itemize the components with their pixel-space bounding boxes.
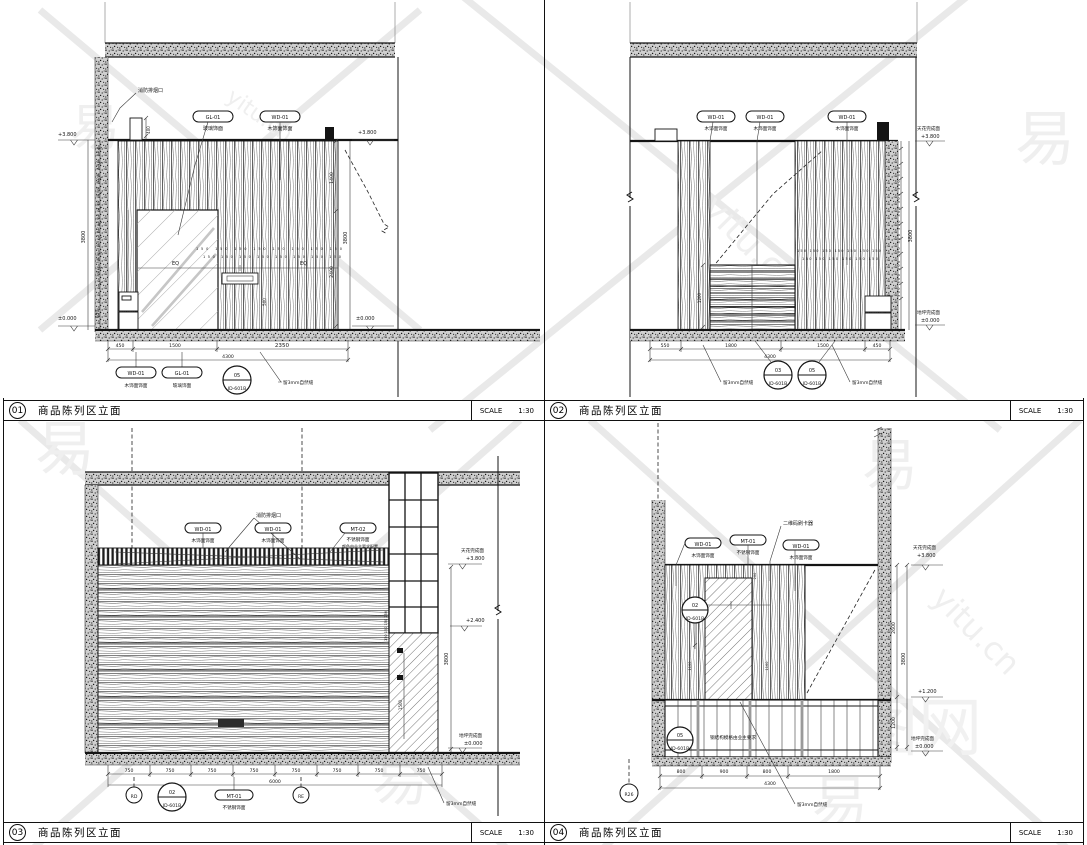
eq-label: EQ bbox=[300, 261, 307, 267]
level-marker-floor: 地坪完成面 ±0.000 bbox=[911, 735, 943, 756]
tag-code: GL-01 bbox=[175, 371, 190, 377]
detail-bubble: 02 ID-601B bbox=[158, 783, 186, 811]
detail-id: ID-601B bbox=[228, 386, 246, 392]
right-dim-column: 3800 bbox=[444, 565, 453, 753]
tag-desc: 木饰面饰面 bbox=[125, 382, 148, 389]
dim-label: 2600 bbox=[891, 622, 897, 634]
right-dim-column: 2600 1200 3800 bbox=[891, 563, 909, 751]
level-label: 天花完成面 bbox=[461, 547, 484, 554]
dim-label: 1500 bbox=[817, 343, 829, 349]
scale-value: 1:30 bbox=[518, 407, 534, 415]
tag-desc: 颜色由业主要求配置 bbox=[342, 543, 378, 549]
panel-number-badge: 03 bbox=[9, 824, 26, 841]
dim-label: 3800 bbox=[444, 653, 450, 666]
detail-number: 02 bbox=[692, 603, 698, 609]
eq-label: EQ bbox=[172, 261, 179, 267]
level-label: 天花完成面 bbox=[913, 544, 936, 551]
right-dim-column: 300 300 300 300 300 300 300 300 300 300 … bbox=[897, 141, 914, 330]
tag-code: MT-02 bbox=[350, 527, 365, 533]
dim-label: 2350 bbox=[275, 343, 290, 349]
scale-label: SCALE bbox=[1019, 829, 1041, 837]
right-fixture bbox=[865, 296, 891, 330]
tag-code: WD-01 bbox=[708, 115, 725, 121]
scale-box: SCALE 1:30 bbox=[1010, 823, 1083, 842]
note-label: 留3mm自然缝 bbox=[797, 801, 828, 808]
level-value: +3.800 bbox=[58, 132, 77, 138]
material-tag-wd01-b: WD-01 木饰面饰面 bbox=[746, 111, 784, 265]
note-label: 留3mm自然缝 bbox=[446, 800, 477, 807]
detail-number: 05 bbox=[234, 373, 240, 379]
grid-label: RD bbox=[131, 794, 138, 800]
material-tag-wd01-a: WD-01 木饰面饰面 bbox=[185, 523, 221, 548]
level-value: ±0.000 bbox=[464, 741, 483, 747]
steel-base-structure: 钢结构模格由业主要求 bbox=[665, 700, 878, 757]
dim-label: 1200 bbox=[891, 717, 897, 729]
panel-title: 商品陈列区立面 bbox=[579, 825, 663, 840]
level-value: ±0.000 bbox=[921, 318, 940, 324]
panel-number: 02 bbox=[553, 406, 564, 416]
level-value: ±0.000 bbox=[58, 316, 77, 322]
dim-label: 800 bbox=[677, 769, 686, 775]
level-marker-floor: 地坪完成面 ±0.000 bbox=[448, 732, 483, 753]
shelving-unit: 1200 bbox=[697, 263, 795, 330]
detail-bubble: 05 ID-601B bbox=[223, 366, 251, 394]
dim-label: 1500 bbox=[398, 699, 403, 710]
note-label: 留3mm自然缝 bbox=[283, 379, 314, 386]
dim-label: 750 bbox=[208, 768, 217, 774]
note-label: 二维码刷卡器 bbox=[783, 520, 813, 527]
dim-label: 750 bbox=[417, 768, 426, 774]
level-value: +1.200 bbox=[918, 689, 937, 695]
sheet-border-right bbox=[1083, 398, 1084, 845]
tag-code: MT-01 bbox=[226, 794, 241, 800]
level-marker-top-left: +3.800 bbox=[58, 132, 95, 145]
seam-note: 留3mm自然缝 bbox=[260, 352, 314, 386]
dim-label: 750 bbox=[250, 768, 259, 774]
scale-label: SCALE bbox=[1019, 407, 1041, 415]
dim-label: 1800 bbox=[725, 343, 737, 349]
detail-id: ID-601B bbox=[671, 746, 689, 752]
elevation-panel-02: 1200 150 150 150 150 150 150 150 150 150… bbox=[545, 0, 1087, 400]
level-value: +2.400 bbox=[466, 618, 485, 624]
detail-number: 05 bbox=[809, 368, 815, 374]
detail-id: ID-601B bbox=[163, 803, 181, 809]
dim-label: 450 bbox=[873, 343, 882, 349]
dim-label: 400 bbox=[146, 126, 151, 134]
bottom-dims: 750 750 750 750 750 750 750 750 6000 bbox=[106, 765, 444, 787]
titlebar-03: 03 商品陈列区立面 SCALE 1:30 bbox=[4, 822, 544, 843]
note-label: 留3mm自然缝 bbox=[852, 379, 883, 386]
dim-label: 3800 bbox=[343, 232, 349, 245]
sheet-divider-vertical bbox=[544, 0, 545, 845]
dim-label: 750 bbox=[125, 768, 134, 774]
level-label: 天花完成面 bbox=[917, 125, 940, 132]
dim-label: 900 bbox=[720, 769, 729, 775]
dim-label: 550 bbox=[661, 343, 670, 349]
scale-value: 1:30 bbox=[1057, 829, 1073, 837]
floor-slab bbox=[85, 753, 520, 765]
grid-bubble-left: RD bbox=[126, 777, 142, 803]
panel-title: 商品陈列区立面 bbox=[38, 403, 122, 418]
tag-desc: 玻璃饰面 bbox=[173, 382, 192, 389]
panel-number: 01 bbox=[12, 406, 23, 416]
level-marker-mid: +2.400 bbox=[450, 618, 485, 631]
sheet-border-left bbox=[3, 398, 4, 845]
note-label: 钢结构模格由业主要求 bbox=[710, 734, 756, 741]
elevation-panel-04: 200 1160 1160 二维码刷卡器 WD-01 木饰面饰面 MT-01 不… bbox=[545, 421, 1087, 823]
seam-note: 留3mm自然缝 bbox=[428, 767, 477, 807]
dim-label: 3800 bbox=[908, 230, 914, 243]
dim-label: 1160 bbox=[688, 662, 692, 671]
level-marker-mid: +1.200 bbox=[911, 689, 943, 702]
hatched-wall-block: 1500 bbox=[389, 633, 438, 753]
tag-desc: 木饰面饰面 bbox=[705, 125, 728, 132]
dim-label: 750 bbox=[333, 768, 342, 774]
dim-label: 750 bbox=[292, 768, 301, 774]
level-label: 地坪完成面 bbox=[911, 735, 934, 742]
level-value: ±0.000 bbox=[356, 316, 375, 322]
level-label: 地坪完成面 bbox=[459, 732, 482, 739]
dim-label: 1160 bbox=[765, 662, 769, 671]
level-marker-top-right: +3.800 bbox=[352, 130, 394, 145]
detail-bubble-05: 05 ID-601B bbox=[667, 727, 693, 753]
bottom-tag-gl01: GL-01 玻璃饰面 bbox=[162, 367, 202, 389]
titlebar-02: 02 商品陈列区立面 SCALE 1:30 bbox=[545, 400, 1083, 421]
scale-box: SCALE 1:30 bbox=[471, 823, 544, 842]
tag-desc: 木饰面饰面 bbox=[790, 554, 813, 561]
dim-label: 2400 bbox=[329, 266, 335, 278]
panel-title: 商品陈列区立面 bbox=[579, 403, 663, 418]
dim-label: 6000 bbox=[269, 779, 281, 785]
tag-code: MT-01 bbox=[740, 539, 755, 545]
dim-label: 150 150 150 150 150 150 150 bbox=[797, 249, 881, 253]
tag-desc: 木饰面饰面 bbox=[692, 552, 715, 559]
level-marker-ceiling: 天花完成面 +3.800 bbox=[915, 125, 945, 146]
tag-desc: 不锈钢饰面 bbox=[223, 804, 246, 811]
level-value: +3.800 bbox=[917, 553, 936, 559]
tag-code: WD-01 bbox=[272, 115, 289, 121]
level-marker-floor: 地坪完成面 ±0.000 bbox=[915, 309, 945, 330]
note-label: 消防排烟口 bbox=[138, 87, 163, 94]
level-marker-bottom-left: ±0.000 bbox=[58, 316, 95, 331]
detail-id: ID-601B bbox=[769, 381, 787, 387]
tag-code: GL-01 bbox=[206, 115, 221, 121]
dim-label: 650 bbox=[95, 310, 101, 319]
level-value: +3.800 bbox=[921, 134, 940, 140]
material-tag-wd01-b: WD-01 木饰面饰面 bbox=[255, 523, 291, 548]
level-value: ±0.000 bbox=[915, 744, 934, 750]
reflection-dashed-line bbox=[345, 150, 389, 234]
note-label: 留3mm自然缝 bbox=[723, 379, 754, 386]
detail-number: 03 bbox=[775, 368, 781, 374]
grid-bubble: R26 bbox=[620, 759, 638, 802]
scale-value: 1:30 bbox=[518, 829, 534, 837]
level-marker-bottom-right: ±0.000 bbox=[352, 316, 394, 331]
dim-label: 450 bbox=[116, 343, 125, 349]
bottom-dims: 450 1500 2350 4300 bbox=[106, 340, 350, 362]
dim-label: 750 bbox=[166, 768, 175, 774]
tag-code: WD-01 bbox=[757, 115, 774, 121]
dim-label: 3800 bbox=[81, 231, 87, 244]
dim-label: 1800 bbox=[828, 769, 840, 775]
tag-code: WD-01 bbox=[195, 527, 212, 533]
material-tag-mt01: MT-01 不锈钢饰面 bbox=[215, 777, 253, 811]
dim-label: 1200 bbox=[697, 292, 702, 303]
tag-code: WD-01 bbox=[695, 542, 712, 548]
panel-title: 商品陈列区立面 bbox=[38, 825, 122, 840]
dim-label: 500 bbox=[262, 298, 267, 306]
tag-desc: 木饰面饰面 bbox=[754, 125, 777, 132]
scale-box: SCALE 1:30 bbox=[1010, 401, 1083, 420]
panel-number-badge: 02 bbox=[550, 402, 567, 419]
floor-slab bbox=[95, 330, 540, 341]
dim-label: 1500 bbox=[169, 343, 181, 349]
level-label: 地坪完成面 bbox=[917, 309, 940, 316]
level-marker-ceiling: 天花完成面 +3.800 bbox=[448, 547, 485, 569]
panel-number: 04 bbox=[553, 828, 564, 838]
bottom-dims: 800 900 800 1800 4300 bbox=[658, 766, 882, 790]
drawing-sheet: 易 易 易 易 易 易 yitu.cn yitu.cn yitu.cn yitu… bbox=[0, 0, 1087, 845]
dim-label: 800 bbox=[763, 769, 772, 775]
level-marker-ceiling: 天花完成面 +3.800 bbox=[911, 544, 943, 570]
grid-label: RE bbox=[298, 794, 304, 800]
bottom-slab bbox=[652, 757, 891, 766]
dim-label: 3800 bbox=[901, 653, 907, 666]
detail-number: 02 bbox=[169, 790, 175, 796]
dim-label: 150 150 150 150 150 150 bbox=[802, 257, 878, 261]
dim-label: 4300 bbox=[764, 781, 776, 787]
wood-wall: 200 1160 1160 bbox=[665, 565, 876, 700]
titlebar-01: 01 商品陈列区立面 SCALE 1:30 bbox=[4, 400, 544, 421]
note-label: 消防排烟口 bbox=[256, 512, 281, 519]
level-value: +3.800 bbox=[466, 556, 485, 562]
glass-grid-partition bbox=[389, 473, 438, 633]
panel-number: 03 bbox=[12, 828, 23, 838]
detail-number: 05 bbox=[677, 733, 683, 739]
scale-label: SCALE bbox=[480, 407, 502, 415]
steel-strip bbox=[98, 548, 390, 565]
scale-label: SCALE bbox=[480, 829, 502, 837]
bottom-dims: 550 1800 1500 450 4300 bbox=[648, 340, 892, 362]
detail-bubble-03: 03 ID-601B bbox=[755, 341, 792, 389]
floor-slab bbox=[630, 330, 905, 341]
scale-box: SCALE 1:30 bbox=[471, 401, 544, 420]
elevation-panel-01: EQ EQ 500 150 150 150 150 150 150 150 15… bbox=[0, 0, 545, 400]
grid-label: R26 bbox=[624, 792, 633, 798]
panel-number-badge: 01 bbox=[9, 402, 26, 419]
tag-code: WD-01 bbox=[793, 544, 810, 550]
dim-label: 1400 bbox=[329, 172, 335, 184]
scale-value: 1:30 bbox=[1057, 407, 1073, 415]
detail-id: ID-601B bbox=[803, 381, 821, 387]
tag-code: WD-01 bbox=[839, 115, 856, 121]
detail-id: ID-601B bbox=[686, 616, 704, 622]
grid-bubble-right: RE bbox=[293, 777, 309, 803]
seam-note-right: 留3mm自然缝 bbox=[832, 345, 883, 386]
tag-code: WD-01 bbox=[128, 371, 145, 377]
dim-label: 150 150 150 150 bbox=[384, 611, 388, 641]
dim-label: 4300 bbox=[222, 354, 234, 360]
dim-label: 750 bbox=[375, 768, 384, 774]
titlebar-04: 04 商品陈列区立面 SCALE 1:30 bbox=[545, 822, 1083, 843]
wood-slat-wall: 150 150 150 150 bbox=[98, 565, 390, 753]
panel-number-badge: 04 bbox=[550, 824, 567, 841]
seam-note-left: 留3mm自然缝 bbox=[703, 345, 754, 386]
elevation-panel-03: 150 150 150 150 1500 WD-01 木饰面饰面 消防排烟口 W… bbox=[0, 421, 545, 823]
dim-label: 200 bbox=[753, 573, 757, 580]
tag-code: WD-01 bbox=[265, 527, 282, 533]
tag-desc: 不锈钢饰面 bbox=[347, 536, 370, 543]
level-value: +3.800 bbox=[358, 130, 377, 136]
